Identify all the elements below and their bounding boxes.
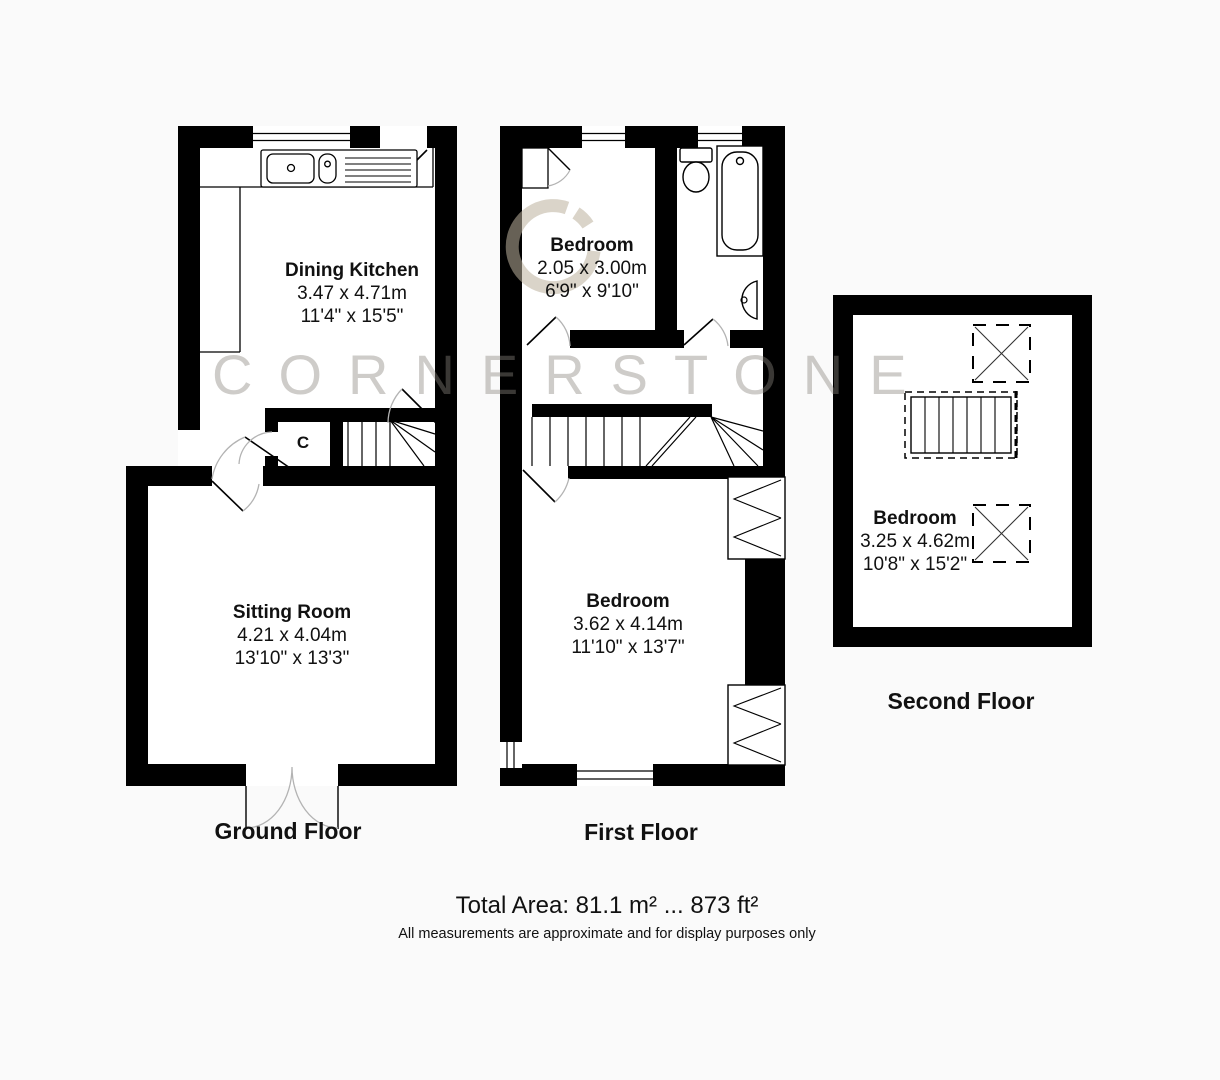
first-floor-title: First Floor [584,819,698,846]
kitchen-sink-icon [261,150,417,187]
room-dim-metric: 3.62 x 4.14m [571,613,684,636]
room-dim-metric: 2.05 x 3.00m [537,257,647,280]
closet-label: C [297,433,309,453]
kitchen-window-icon [253,126,350,148]
room-label-bedroom-attic: Bedroom 3.25 x 4.62m 10'8" x 15'2" [860,507,970,576]
room-dim-metric: 3.47 x 4.71m [285,282,419,305]
room-label-bedroom-small: Bedroom 2.05 x 3.00m 6'9" x 9'10" [537,234,647,303]
toilet-icon [680,148,712,192]
room-label-dining-kitchen: Dining Kitchen 3.47 x 4.71m 11'4" x 15'5… [285,259,419,328]
room-name: Bedroom [571,590,684,613]
second-floor-plan [833,295,1092,647]
second-stairs-icon [905,391,1017,459]
room-dim-imperial: 6'9" x 9'10" [537,280,647,303]
first-floor-plan [500,126,785,786]
floorplan-canvas: CORNERSTONE Dining Kitchen 3.47 x 4.71m … [0,0,1220,1080]
room-dim-metric: 3.25 x 4.62m [860,530,970,553]
room-name: Sitting Room [233,601,351,624]
room-name: Bedroom [860,507,970,530]
disclaimer-text: All measurements are approximate and for… [398,926,816,942]
ground-floor-title: Ground Floor [215,818,362,845]
second-floor-title: Second Floor [888,688,1035,715]
room-label-sitting-room: Sitting Room 4.21 x 4.04m 13'10" x 13'3" [233,601,351,670]
ground-floor-plan [126,126,457,829]
room-dim-imperial: 11'4" x 15'5" [285,305,419,328]
room-name: Dining Kitchen [285,259,419,282]
room-dim-imperial: 11'10" x 13'7" [571,636,684,659]
total-area-text: Total Area: 81.1 m² ... 873 ft² [456,892,759,920]
room-dim-imperial: 13'10" x 13'3" [233,647,351,670]
room-name: Bedroom [537,234,647,257]
room-label-bedroom-large: Bedroom 3.62 x 4.14m 11'10" x 13'7" [571,590,684,659]
room-dim-imperial: 10'8" x 15'2" [860,553,970,576]
room-dim-metric: 4.21 x 4.04m [233,624,351,647]
bath-icon [717,146,763,256]
